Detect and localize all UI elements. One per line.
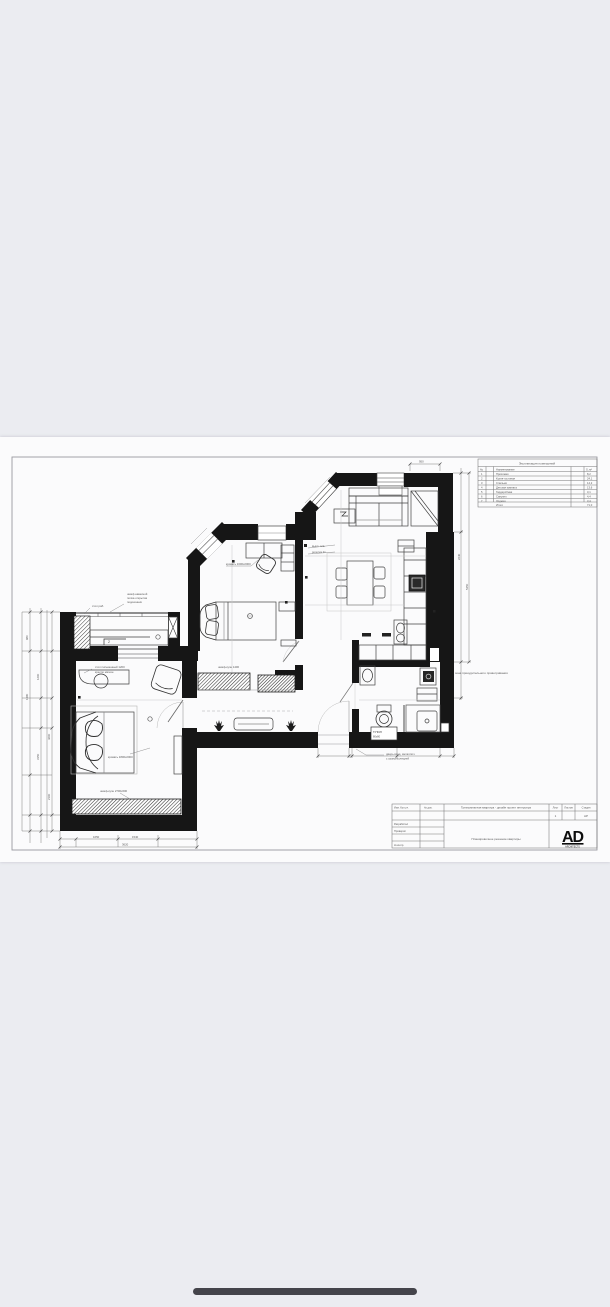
svg-text:Санузел: Санузел: [496, 495, 507, 499]
svg-text:980: 980: [25, 635, 29, 640]
svg-text:Прихожая: Прихожая: [496, 472, 509, 476]
svg-text:Н.контр.: Н.контр.: [394, 843, 404, 847]
svg-text:3,1: 3,1: [587, 490, 591, 494]
svg-text:Итого: Итого: [496, 503, 504, 507]
svg-text:стол письменный 1200: стол письменный 1200: [95, 665, 125, 669]
svg-text:1200: 1200: [36, 673, 40, 680]
svg-text:Экспликация помещений: Экспликация помещений: [519, 462, 555, 466]
svg-text:14,2: 14,2: [587, 481, 593, 485]
svg-text:3620: 3620: [122, 843, 129, 847]
svg-text:2240: 2240: [457, 553, 461, 560]
svg-text:кровать 1800х2000: кровать 1800х2000: [108, 755, 133, 759]
svg-text:4: 4: [481, 486, 483, 490]
svg-text:3,4: 3,4: [587, 499, 591, 503]
svg-text:Листов: Листов: [564, 806, 573, 810]
svg-text:Лист: Лист: [553, 806, 559, 810]
svg-text:подоконник: подоконник: [127, 600, 143, 604]
svg-text:24,1: 24,1: [587, 477, 593, 481]
svg-text:1650: 1650: [93, 835, 100, 839]
svg-text:Гардеробная: Гардеробная: [496, 490, 513, 494]
svg-text:Трехкомнатная квартира - дизай: Трехкомнатная квартира - дизайн проект и…: [461, 806, 531, 810]
svg-text:5450: 5450: [465, 583, 469, 590]
svg-text:1540: 1540: [132, 835, 139, 839]
svg-text:выкл. осв.: выкл. осв.: [312, 544, 325, 548]
svg-text:№: №: [480, 469, 483, 472]
svg-text:80х80: 80х80: [373, 735, 381, 739]
svg-text:2100: 2100: [47, 793, 51, 800]
svg-text:стол раб.: стол раб.: [92, 604, 104, 608]
svg-text:Лоджия: Лоджия: [496, 499, 506, 503]
svg-text:шкаф-купе 1400: шкаф-купе 1400: [218, 665, 239, 669]
svg-text:2: 2: [481, 477, 483, 481]
svg-text:кровать 1600х2000: кровать 1600х2000: [226, 562, 251, 566]
svg-text:8,2: 8,2: [587, 472, 591, 476]
svg-text:1380: 1380: [25, 693, 29, 700]
svg-text:4,4: 4,4: [587, 495, 591, 499]
svg-text:950: 950: [419, 460, 424, 464]
svg-text:6: 6: [481, 495, 483, 499]
svg-text:Детская комната: Детская комната: [496, 486, 517, 490]
svg-text:Планировочное решение квартиры: Планировочное решение квартиры: [471, 837, 520, 841]
svg-text:3150: 3150: [36, 753, 40, 760]
svg-text:4200: 4200: [47, 733, 51, 740]
svg-text:71,0: 71,0: [587, 503, 593, 507]
svg-text:кресло мягкое: кресло мягкое: [95, 670, 114, 674]
svg-text:Стадия: Стадия: [582, 806, 591, 810]
svg-text:с шумоизоляцией: с шумоизоляцией: [386, 757, 409, 761]
svg-text:зона принудительного проветрив: зона принудительного проветривания: [455, 671, 508, 675]
svg-text:Разработал: Разработал: [394, 822, 409, 826]
svg-text:2: 2: [108, 640, 110, 644]
svg-text:розетка 2х: розетка 2х: [312, 550, 326, 554]
svg-text:13,6: 13,6: [587, 486, 593, 490]
svg-text:Наименование: Наименование: [496, 468, 515, 472]
svg-text:№ док.: № док.: [424, 807, 433, 810]
svg-text:Проверил: Проверил: [394, 829, 406, 833]
svg-text:5: 5: [481, 490, 483, 494]
svg-text:шкаф-купе 2700х600: шкаф-купе 2700х600: [100, 789, 128, 793]
svg-text:S, м²: S, м²: [586, 468, 592, 472]
svg-text:дверь вход. металлич.: дверь вход. металлич.: [386, 752, 415, 756]
svg-text:3: 3: [481, 481, 483, 485]
svg-text:Кухня-гостиная: Кухня-гостиная: [496, 477, 516, 481]
svg-text:Изм. Кол.уч.: Изм. Кол.уч.: [394, 806, 409, 810]
svg-text:Т.ПОЛ: Т.ПОЛ: [373, 730, 382, 734]
svg-text:ARCHITECTS: ARCHITECTS: [565, 846, 580, 849]
svg-text:1: 1: [555, 814, 557, 818]
svg-text:АР: АР: [584, 814, 588, 818]
svg-text:1: 1: [481, 472, 483, 476]
svg-text:Спальня: Спальня: [496, 481, 507, 485]
svg-text:7: 7: [481, 499, 483, 503]
